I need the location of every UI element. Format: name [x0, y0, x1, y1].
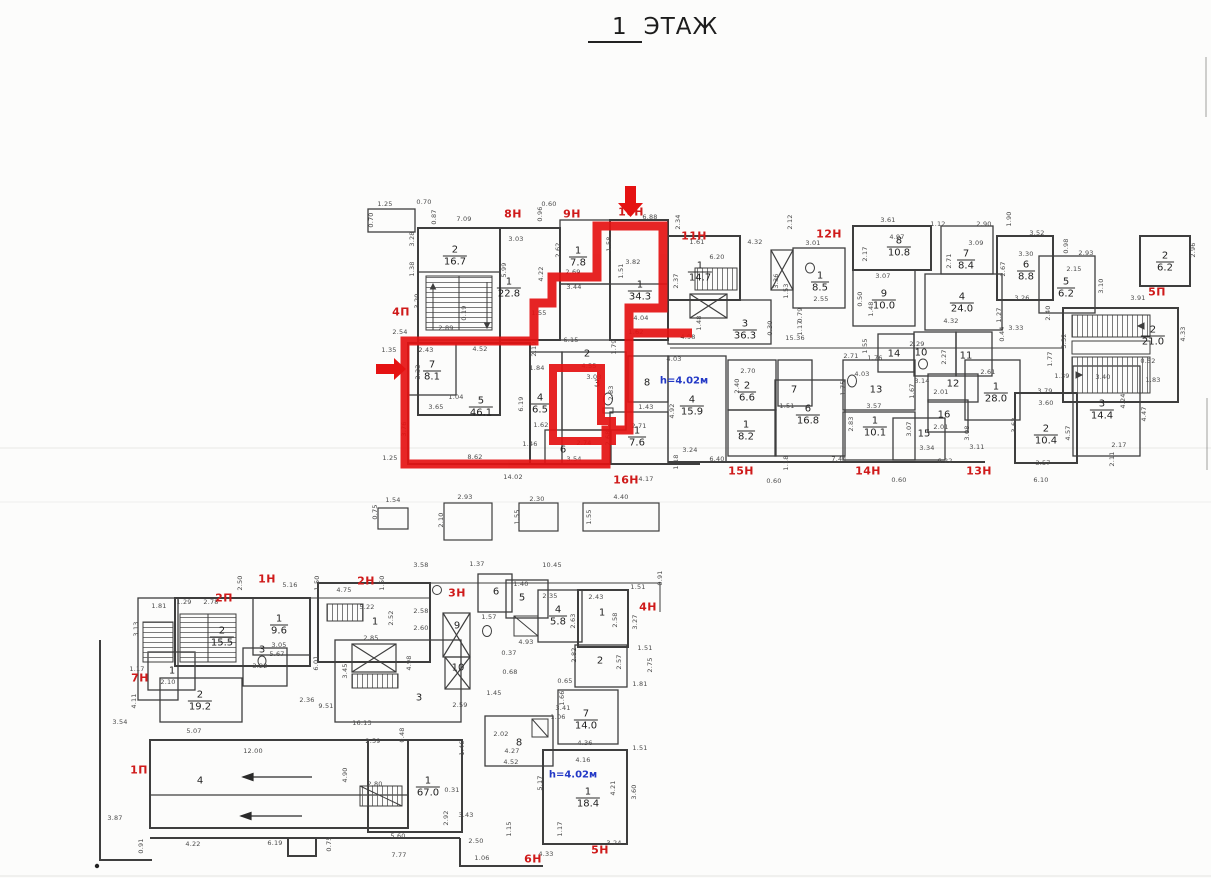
room-label: 219.2 [188, 690, 212, 713]
room-label: 68.8 [1017, 260, 1035, 283]
dimension-label: 1.39 [1054, 372, 1069, 380]
dimension-label: 2.34 [674, 214, 682, 229]
room-label: 336.3 [733, 319, 757, 342]
room-number: 2 [188, 690, 212, 702]
room-label: 14 [885, 349, 904, 360]
dimension-label: 1.25 [377, 200, 392, 208]
dimension-label: 1.55 [513, 509, 521, 524]
room-label: 215.5 [210, 626, 234, 649]
dimension-label: 0.31 [444, 786, 459, 794]
dimension-label: 2.40 [1044, 305, 1052, 320]
room-label: 3 [256, 645, 268, 656]
dimension-label: 3.28 [408, 231, 416, 246]
section-label-2П: 2П [215, 592, 233, 605]
dimension-label: 4.40 [613, 493, 628, 501]
room-number: 3 [413, 693, 425, 704]
dimension-label: 3.30 [1018, 250, 1033, 258]
dimension-label: 2.37 [672, 273, 680, 288]
dimension-label: 2.54 [392, 328, 407, 336]
room-area: 14.4 [1090, 411, 1114, 422]
dimension-label: 3.54 [566, 455, 581, 463]
dimension-label: 4.21 [609, 780, 617, 795]
dimension-label: 0.60 [541, 200, 556, 208]
dimension-label: 2.60 [413, 624, 428, 632]
room-label: 13 [867, 385, 886, 396]
room-label: 9 [451, 621, 463, 632]
dimension-label: 0.19 [460, 305, 468, 320]
room-area: 19.2 [188, 702, 212, 713]
dimension-label: 2.63 [569, 613, 577, 628]
dimension-label: 0.60 [891, 476, 906, 484]
dimension-label: 1.48 [867, 301, 875, 316]
room-label: 128.0 [984, 382, 1008, 405]
dimension-label: 1.40 [513, 580, 528, 588]
room-number: 1 [166, 666, 178, 677]
room-label: 10 [912, 348, 931, 359]
dimension-label: 1.46 [522, 440, 537, 448]
room-label: 1 [166, 666, 178, 677]
dimension-label: 1.58 [605, 236, 613, 251]
dimension-label: 1.55 [861, 338, 869, 353]
dimension-label: 4.90 [341, 767, 349, 782]
dimension-label: 0.65 [557, 677, 572, 685]
dimension-label: 2.71 [945, 253, 953, 268]
dimension-label: 3.11 [969, 443, 984, 451]
dimension-label: 4.03 [666, 355, 681, 363]
dimension-label: 0.70 [367, 212, 375, 227]
dimension-label: 3.40 [1095, 373, 1110, 381]
dimension-label: 3.57 [866, 402, 881, 410]
section-label-2Н: 2Н [357, 575, 375, 588]
room-area: 7.8 [569, 258, 587, 269]
room-label: 546.1 [469, 396, 493, 419]
dimension-label: 2.85 [363, 634, 378, 642]
dimension-label: 1.50 [313, 575, 321, 590]
room-number: 3 [256, 645, 268, 656]
dimension-label: 3.60 [630, 784, 638, 799]
room-label: 415.9 [680, 395, 704, 418]
room-number: 5 [516, 593, 528, 604]
room-label: 3 [413, 693, 425, 704]
room-number: 5 [469, 396, 493, 408]
room-label: 56.2 [1057, 277, 1075, 300]
room-number: 8 [641, 378, 653, 389]
room-number: 2 [1156, 251, 1174, 263]
dimension-label: 2.69 [565, 268, 580, 276]
dimension-label: 1.43 [638, 403, 653, 411]
dimension-label: 2.10 [437, 512, 445, 527]
dimension-label: 0.30 [766, 320, 774, 335]
dimension-label: 2.67 [999, 261, 1007, 276]
dimension-label: 1.04 [448, 393, 463, 401]
dimension-label: 2.82 [570, 647, 578, 662]
room-number: 7 [423, 360, 441, 372]
dimension-label: 15.36 [785, 334, 805, 342]
room-area: 10.8 [887, 248, 911, 259]
dimension-label: 4.03 [854, 370, 869, 378]
room-number: 1 [628, 280, 652, 292]
room-number: 1 [596, 608, 608, 619]
dimension-label: 1.53 [782, 283, 790, 298]
room-area: 28.0 [984, 394, 1008, 405]
room-label: 26.2 [1156, 251, 1174, 274]
dimension-label: 3.10 [1097, 278, 1105, 293]
dimension-label: 2.29 [909, 340, 924, 348]
section-label-14Н: 14Н [855, 465, 881, 478]
room-label: 616.8 [796, 404, 820, 427]
dimension-label: 0.68 [502, 668, 517, 676]
room-label: 314.4 [1090, 399, 1114, 422]
room-label: 78.1 [423, 360, 441, 383]
dimension-label: 6.10 [1033, 476, 1048, 484]
dimension-label: 3.61 [880, 216, 895, 224]
room-number: 1 [270, 614, 288, 626]
dimension-label: 3.22 [252, 662, 267, 670]
room-number: 4 [531, 393, 549, 405]
dimension-label: 1.18 [672, 454, 680, 469]
room-area: 6.2 [1057, 289, 1075, 300]
dimension-label: 2.17 [1111, 441, 1126, 449]
room-label: 46.5 [531, 393, 549, 416]
dimension-label: 4.33 [1179, 326, 1187, 341]
room-number: 1 [688, 261, 712, 273]
dimension-label: 7.77 [391, 851, 406, 859]
dimension-label: 0.52 [1140, 357, 1155, 365]
dimension-label: 4.22 [185, 840, 200, 848]
room-number: 5 [1057, 277, 1075, 289]
dimension-label: 4.04 [633, 314, 648, 322]
room-label: 8 [641, 378, 653, 389]
dimension-label: 2.75 [646, 657, 654, 672]
dimension-label: 1.37 [469, 560, 484, 568]
dimension-label: 2.96 [1189, 242, 1197, 257]
dimension-label: 2.36 [299, 696, 314, 704]
dimension-label: 2.62 [554, 242, 562, 257]
dimension-label: 5.60 [390, 832, 405, 840]
dimension-label: 2.55 [813, 295, 828, 303]
dimension-label: 3.82 [625, 258, 640, 266]
dimension-label: 1.54 [385, 496, 400, 504]
dimension-label: 6.01 [312, 655, 320, 670]
dimension-label: 2.15 [1066, 265, 1081, 273]
dimension-label: 3.32 [1060, 333, 1068, 348]
room-label: 118.4 [576, 787, 600, 810]
dimension-label: 4.92 [668, 403, 676, 418]
room-number: 2 [443, 245, 467, 257]
room-label: 1 [596, 608, 608, 619]
dimension-label: 5.22 [359, 603, 374, 611]
dimension-label: 4.98 [405, 655, 413, 670]
dimension-label: 2.83 [847, 416, 855, 431]
room-number: 1 [416, 776, 440, 788]
room-area: 6.5 [531, 405, 549, 416]
dimension-label: 1.51 [617, 263, 625, 278]
room-number: 2 [1034, 424, 1058, 436]
dimension-label: 3.60 [1038, 399, 1053, 407]
room-number: 7 [957, 249, 975, 261]
dimension-label: 3.07 [905, 421, 913, 436]
section-label-16Н: 16Н [613, 474, 639, 487]
dimension-label: 4.36 [577, 739, 592, 747]
room-label: 10 [449, 663, 468, 674]
room-number: 4 [549, 605, 567, 617]
room-label: 4 [194, 776, 206, 787]
room-area: 9.6 [270, 626, 288, 637]
dimension-label: 3.03 [508, 235, 523, 243]
section-label-5Н: 5Н [591, 844, 609, 857]
room-label: 134.3 [628, 280, 652, 303]
dimension-label: 1.84 [529, 364, 544, 372]
dimension-label: 0.91 [137, 838, 145, 853]
dimension-label: 2.43 [588, 593, 603, 601]
dimension-label: 3.52 [1029, 229, 1044, 237]
dimension-label: 3.45 [341, 663, 349, 678]
dimension-label: 6.19 [517, 396, 525, 411]
dimension-label: 2.57 [615, 654, 623, 669]
dimension-label: 3.26 [1014, 294, 1029, 302]
dimension-label: 1.79 [610, 339, 618, 354]
dimension-label: 3.27 [631, 614, 639, 629]
dimension-label: 2.50 [468, 837, 483, 845]
labels-layer: 216.7122.817.8134.3114.7336.318.5810.891… [0, 0, 1211, 878]
room-number: 1 [811, 271, 829, 283]
dimension-label: 1.51 [630, 583, 645, 591]
room-number: 4 [194, 776, 206, 787]
room-area: 16.8 [796, 416, 820, 427]
room-area: 21.0 [1141, 337, 1165, 348]
dimension-label: 0.48 [398, 727, 406, 742]
dimension-label: 3.34 [919, 444, 934, 452]
dimension-label: 3.87 [107, 814, 122, 822]
room-area: 5.8 [549, 617, 567, 628]
room-area: 7.6 [628, 438, 646, 449]
dimension-label: 6.40 [709, 455, 724, 463]
room-number: 2 [594, 656, 606, 667]
dimension-label: 2.74 [576, 439, 591, 447]
dimension-label: 1.06 [550, 713, 565, 721]
dimension-label: 2.58 [413, 607, 428, 615]
dimension-label: 5.17 [536, 775, 544, 790]
dimension-label: 0.98 [1062, 238, 1070, 253]
dimension-label: 4.16 [575, 756, 590, 764]
room-label: 110.1 [863, 416, 887, 439]
section-label-4Н: 4Н [639, 601, 657, 614]
dimension-label: 3.43 [458, 811, 473, 819]
room-label: 6 [490, 587, 502, 598]
dimension-label: 2.11 [1108, 451, 1116, 466]
room-number: 13 [867, 385, 886, 396]
dimension-label: 2.89 [438, 324, 453, 332]
dimension-label: 3.62 [1010, 417, 1018, 432]
dimension-label: 1.67 [908, 383, 916, 398]
dimension-label: 1.51 [779, 402, 794, 410]
dimension-label: 2.52 [387, 610, 395, 625]
dimension-label: 2.70 [740, 367, 755, 375]
section-label-7Н: 7Н [131, 672, 149, 685]
room-label: 19.6 [270, 614, 288, 637]
room-label: 424.0 [950, 292, 974, 315]
dimension-label: 3.14 [914, 377, 929, 385]
dimension-label: 1.35 [381, 346, 396, 354]
dimension-label: 3.91 [1130, 294, 1145, 302]
room-area: 10.0 [872, 301, 896, 312]
dimension-label: 2.50 [236, 575, 244, 590]
room-number: 6 [490, 587, 502, 598]
dimension-label: 3.54 [112, 718, 127, 726]
dimension-label: 1.06 [474, 854, 489, 862]
room-area: 16.7 [443, 257, 467, 268]
dimension-label: 0.37 [501, 649, 516, 657]
room-label: 5 [516, 593, 528, 604]
section-label-8Н: 8Н [504, 208, 522, 221]
room-number: 1 [863, 416, 887, 428]
room-area: 22.8 [497, 289, 521, 300]
dimension-label: 1.46 [458, 740, 466, 755]
dimension-label: 1.17 [556, 821, 564, 836]
dimension-label: 12.00 [243, 747, 263, 755]
dimension-label: 3.36 [772, 273, 780, 288]
room-area: 8.4 [957, 261, 975, 272]
room-label: 910.0 [872, 289, 896, 312]
room-number: 10 [912, 348, 931, 359]
room-number: 15 [915, 429, 934, 440]
dimension-label: 4.27 [504, 747, 519, 755]
section-label-10Н: 10Н [618, 206, 644, 219]
section-label-1П: 1П [130, 764, 148, 777]
room-label: 18.2 [737, 420, 755, 443]
dimension-label: 1.66 [558, 690, 566, 705]
room-label: 16 [935, 410, 954, 421]
room-area: 24.0 [950, 304, 974, 315]
room-number: 14 [885, 349, 904, 360]
dimension-label: 2.58 [611, 612, 619, 627]
dimension-label: 16.13 [352, 719, 372, 727]
dimension-label: 1.83 [1145, 376, 1160, 384]
room-area: 6.6 [738, 393, 756, 404]
floor-plan-page: 1ЭТАЖ [0, 0, 1211, 878]
dimension-label: 4.17 [638, 475, 653, 483]
room-label: 17.8 [569, 246, 587, 269]
dimension-label: 4.24 [1119, 393, 1127, 408]
dimension-label: 3.76 [400, 421, 408, 436]
dimension-label: 3.05 [271, 641, 286, 649]
dimension-label: 3.58 [413, 561, 428, 569]
dimension-label: 5.67 [269, 650, 284, 658]
dimension-label: 2.80 [367, 780, 382, 788]
dimension-label: 4.93 [518, 638, 533, 646]
room-area: 10.1 [863, 428, 887, 439]
dimension-label: 4.97 [889, 233, 904, 241]
dimension-label: 2.17 [861, 246, 869, 261]
dimension-label: 3.44 [566, 283, 581, 291]
room-number: 7 [574, 709, 598, 721]
dimension-label: 14.02 [503, 473, 523, 481]
dimension-label: 1.51 [632, 744, 647, 752]
room-area: 36.3 [733, 331, 757, 342]
dimension-label: 3.79 [1037, 387, 1052, 395]
dimension-label: 3.24 [682, 446, 697, 454]
dimension-label: 2.68 [604, 430, 612, 445]
dimension-label: 2.19 [530, 341, 538, 356]
room-number: 9 [451, 621, 463, 632]
room-label: 6 [557, 445, 569, 456]
dimension-label: 2.30 [529, 495, 544, 503]
dimension-label: 2.83 [607, 385, 615, 400]
dimension-label: 0.70 [416, 198, 431, 206]
dimension-label: 1.50 [378, 575, 386, 590]
dimension-label: 1.12 [930, 220, 945, 228]
dimension-label: 4.55 [581, 362, 596, 370]
dimension-label: 3.08 [963, 425, 971, 440]
ceiling-height-label: h=4.02м [549, 770, 597, 781]
room-area: 8.2 [737, 432, 755, 443]
room-number: 2 [1141, 325, 1165, 337]
section-label-5П: 5П [1148, 286, 1166, 299]
room-label: 1 [369, 617, 381, 628]
dimension-label: 4.52 [503, 758, 518, 766]
room-area: 10.4 [1034, 436, 1058, 447]
dimension-label: 2.01 [933, 388, 948, 396]
dimension-label: 2.02 [493, 730, 508, 738]
dimension-label: 1.25 [382, 454, 397, 462]
dimension-label: 1.76 [867, 354, 882, 362]
dimension-label: 3.09 [968, 239, 983, 247]
section-label-3Н: 3Н [448, 587, 466, 600]
ceiling-height-label: h=4.02м [660, 376, 708, 387]
section-label-1Н: 1Н [258, 573, 276, 586]
room-label: 114.7 [688, 261, 712, 284]
dimension-label: 1.29 [176, 598, 191, 606]
room-label: 216.7 [443, 245, 467, 268]
dimension-label: 2.40 [733, 378, 741, 393]
dimension-label: 0.75 [371, 504, 379, 519]
dimension-label: 1.62 [533, 421, 548, 429]
room-area: 67.0 [416, 788, 440, 799]
dimension-label: 1.75 [839, 380, 847, 395]
room-number: 2 [210, 626, 234, 638]
room-label: 2 [581, 349, 593, 360]
dimension-label: 2.93 [1078, 249, 1093, 257]
dimension-label: 4.98 [680, 333, 695, 341]
dimension-label: 0.50 [856, 291, 864, 306]
room-label: 221.0 [1141, 325, 1165, 348]
dimension-label: 1.38 [408, 261, 416, 276]
room-label: 11 [957, 351, 976, 362]
dimension-label: 6.19 [267, 839, 282, 847]
section-label-15Н: 15Н [728, 465, 754, 478]
dimension-label: 4.52 [472, 345, 487, 353]
room-label: 18.5 [811, 271, 829, 294]
room-label: 45.8 [549, 605, 567, 628]
dimension-label: 6.88 [642, 213, 657, 221]
room-number: 10 [449, 663, 468, 674]
room-number: 7 [788, 385, 800, 396]
dimension-label: 1.48 [695, 315, 703, 330]
room-label: 167.0 [416, 776, 440, 799]
room-number: 1 [576, 787, 600, 799]
dimension-label: 0.96 [536, 206, 544, 221]
room-number: 2 [581, 349, 593, 360]
dimension-label: 2.61 [980, 368, 995, 376]
dimension-label: 2.59 [365, 737, 380, 745]
room-area: 15.5 [210, 638, 234, 649]
room-label: 7 [788, 385, 800, 396]
dimension-label: 2.92 [442, 810, 450, 825]
dimension-label: 6.20 [709, 253, 724, 261]
dimension-label: 2.27 [940, 349, 948, 364]
dimension-label: 4.32 [943, 317, 958, 325]
dimension-label: 3.03 [586, 373, 601, 381]
